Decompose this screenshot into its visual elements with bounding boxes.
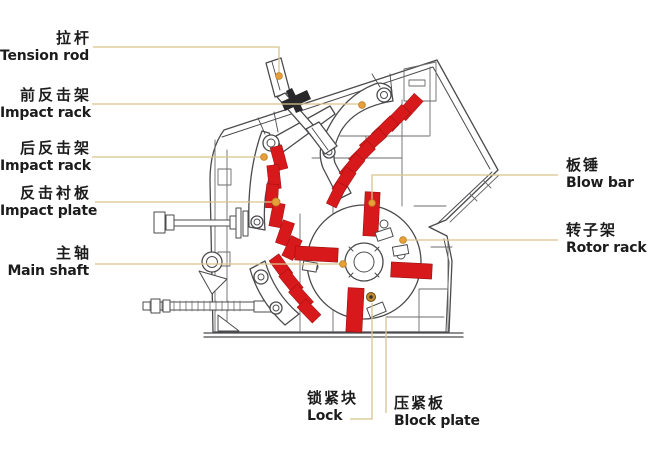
- label-lock-zh: 锁紧块: [307, 389, 358, 408]
- label-lock: 锁紧块 Lock: [307, 389, 358, 424]
- label-block-plate-zh: 压紧板: [394, 394, 480, 413]
- label-rear-impact-rack-zh: 后反击架: [0, 139, 92, 158]
- upper-tie-rod-cylinder: [154, 208, 262, 238]
- label-block-plate: 压紧板 Block plate: [394, 394, 480, 429]
- label-rotor-rack-zh: 转子架: [566, 221, 646, 240]
- label-blow-bar: 板锤 Blow bar: [566, 156, 634, 191]
- label-tension-rod: 拉杆 Tension rod: [0, 29, 89, 64]
- label-impact-plate: 反击衬板 Impact plate: [0, 184, 89, 219]
- label-blow-bar-en: Blow bar: [566, 175, 634, 191]
- label-impact-plate-en: Impact plate: [0, 203, 89, 219]
- label-main-shaft: 主轴 Main shaft: [0, 244, 89, 279]
- label-main-shaft-en: Main shaft: [0, 263, 89, 279]
- leader-tension-rod: [93, 47, 279, 73]
- label-lock-en: Lock: [307, 408, 358, 424]
- label-rotor-rack: 转子架 Rotor rack: [566, 221, 646, 256]
- label-rear-impact-rack-en: Impact rack: [0, 158, 89, 174]
- label-blow-bar-zh: 板锤: [566, 156, 634, 175]
- label-tension-rod-zh: 拉杆: [0, 29, 92, 48]
- label-rear-impact-rack: 后反击架 Impact rack: [0, 139, 89, 174]
- label-front-impact-rack-en: Impact rack: [0, 105, 89, 121]
- label-main-shaft-zh: 主轴: [0, 244, 92, 263]
- main-shaft-hub: [345, 243, 383, 281]
- label-rotor-rack-en: Rotor rack: [566, 240, 646, 256]
- label-front-impact-rack: 前反击架 Impact rack: [0, 86, 89, 121]
- label-front-impact-rack-zh: 前反击架: [0, 86, 92, 105]
- label-tension-rod-en: Tension rod: [0, 48, 89, 64]
- diagram-canvas: 拉杆 Tension rod 前反击架 Impact rack 后反击架 Imp…: [0, 0, 650, 458]
- label-impact-plate-zh: 反击衬板: [0, 184, 92, 203]
- label-block-plate-en: Block plate: [394, 413, 480, 429]
